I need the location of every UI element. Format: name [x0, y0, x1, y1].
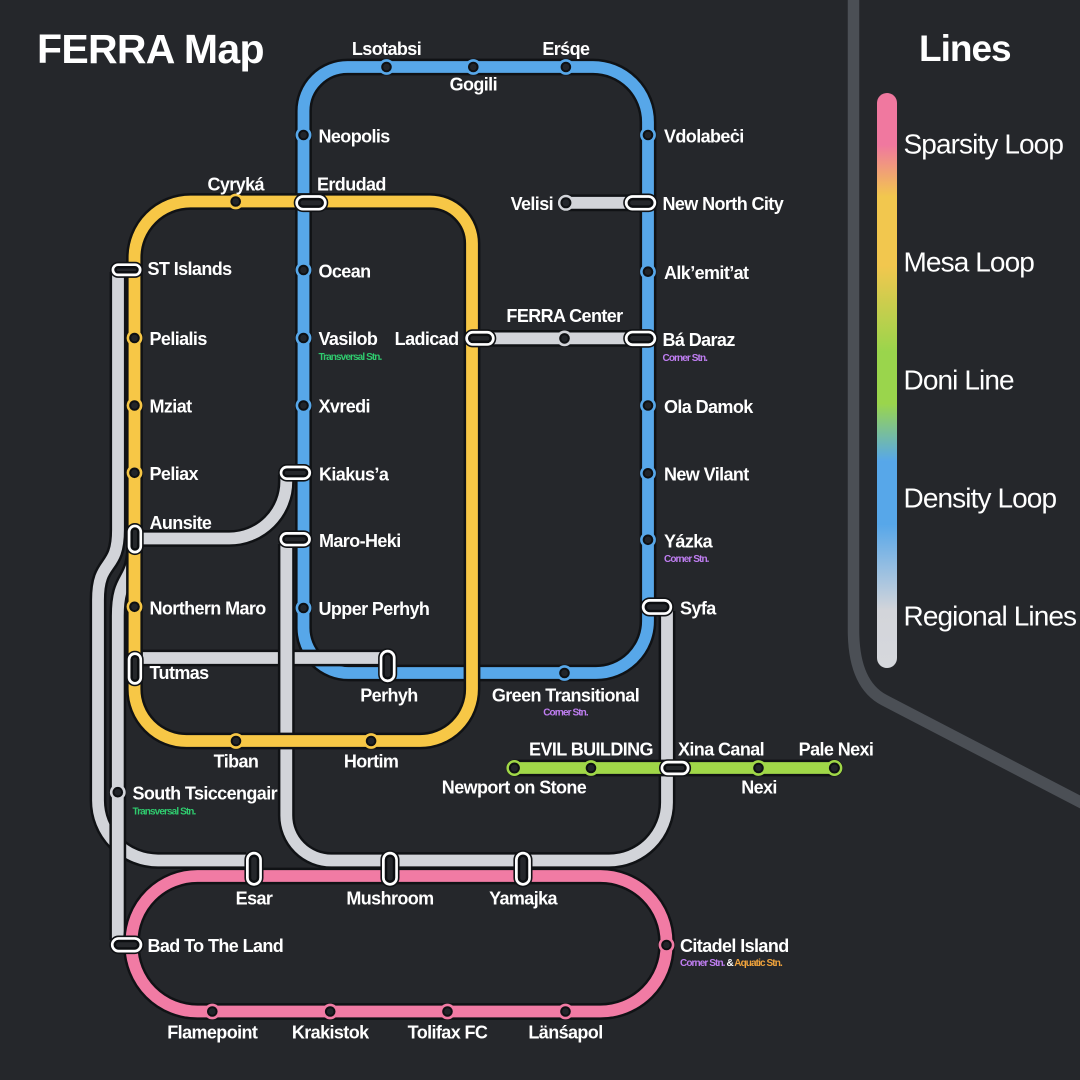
svg-text:Xvredi: Xvredi: [319, 397, 370, 417]
svg-text:FERRA Map: FERRA Map: [37, 26, 264, 72]
svg-text:New Vilant: New Vilant: [664, 465, 749, 485]
svg-text:EVIL BUILDING: EVIL BUILDING: [529, 740, 653, 760]
svg-text:Tiban: Tiban: [214, 752, 259, 772]
svg-text:Newport on Stone: Newport on Stone: [442, 778, 587, 798]
svg-text:Xina Canal: Xina Canal: [678, 740, 764, 760]
svg-text:Maro-Heki: Maro-Heki: [319, 531, 401, 551]
svg-text:Ocean: Ocean: [319, 262, 371, 282]
svg-text:Mushroom: Mushroom: [346, 889, 433, 909]
svg-text:Vasilob: Vasilob: [319, 329, 378, 349]
svg-text:Ladicad: Ladicad: [395, 329, 459, 349]
svg-text:Mziat: Mziat: [150, 397, 193, 417]
svg-text:Transversal Stn.: Transversal Stn.: [319, 352, 383, 363]
svg-text:ST Islands: ST Islands: [148, 259, 233, 279]
svg-text:Tutmas: Tutmas: [150, 663, 210, 683]
svg-text:Erdudad: Erdudad: [317, 175, 386, 195]
svg-text:Citadel Island: Citadel Island: [680, 936, 789, 956]
svg-text:Density Loop: Density Loop: [904, 483, 1057, 514]
svg-text:Vdolabeċi: Vdolabeċi: [664, 127, 744, 147]
svg-text:Neopolis: Neopolis: [319, 127, 391, 147]
svg-text:Corner Stn. & Aquatic Stn.: Corner Stn. & Aquatic Stn.: [680, 958, 783, 969]
svg-text:Sparsity Loop: Sparsity Loop: [904, 129, 1064, 160]
svg-text:Regional Lines: Regional Lines: [904, 601, 1077, 632]
svg-text:Ola Damok: Ola Damok: [664, 397, 754, 417]
svg-text:Corner Stn.: Corner Stn.: [543, 708, 589, 719]
svg-text:Länśapol: Länśapol: [528, 1023, 602, 1043]
svg-text:Alkʼemitʼat: Alkʼemitʼat: [664, 263, 749, 283]
svg-text:Syfa: Syfa: [680, 599, 717, 619]
svg-text:Bá Daraz: Bá Daraz: [663, 330, 736, 350]
svg-text:New North City: New North City: [663, 194, 784, 214]
svg-text:Bad To The Land: Bad To The Land: [148, 936, 284, 956]
svg-text:Flamepoint: Flamepoint: [167, 1023, 258, 1043]
svg-text:Nexi: Nexi: [741, 778, 777, 798]
svg-text:Erśqe: Erśqe: [542, 39, 590, 59]
svg-text:Cyryká: Cyryká: [207, 175, 265, 195]
svg-text:Velisi: Velisi: [511, 194, 553, 214]
svg-text:Gogili: Gogili: [450, 75, 497, 95]
svg-text:Northern Maro: Northern Maro: [150, 599, 267, 619]
svg-text:Doni Line: Doni Line: [904, 365, 1015, 396]
svg-text:Upper Perhyh: Upper Perhyh: [319, 599, 430, 619]
svg-text:South Tsiccengair: South Tsiccengair: [133, 784, 278, 804]
svg-text:Peliax: Peliax: [150, 464, 199, 484]
svg-text:Aunsite: Aunsite: [150, 513, 212, 533]
svg-text:Kiakusʼa: Kiakusʼa: [319, 465, 390, 485]
svg-text:Perhyh: Perhyh: [360, 686, 417, 706]
svg-text:Corner Stn.: Corner Stn.: [664, 554, 710, 565]
svg-text:Mesa Loop: Mesa Loop: [904, 247, 1035, 278]
svg-text:Tolifax FC: Tolifax FC: [408, 1023, 488, 1043]
svg-text:Corner Stn.: Corner Stn.: [663, 353, 709, 364]
svg-text:Transversal Stn.: Transversal Stn.: [133, 807, 197, 818]
svg-text:Pale Nexi: Pale Nexi: [799, 740, 874, 760]
svg-text:Lines: Lines: [919, 28, 1011, 69]
svg-text:FERRA Center: FERRA Center: [506, 306, 623, 326]
svg-text:Lsotabsi: Lsotabsi: [352, 39, 421, 59]
svg-text:Yázka: Yázka: [664, 532, 714, 552]
svg-text:Krakistok: Krakistok: [292, 1023, 370, 1043]
svg-text:Hortim: Hortim: [344, 752, 398, 772]
svg-text:Yamajka: Yamajka: [489, 889, 558, 909]
svg-text:Pelialis: Pelialis: [150, 329, 208, 349]
svg-text:Green Transitional: Green Transitional: [492, 686, 639, 706]
svg-text:Esar: Esar: [236, 889, 273, 909]
